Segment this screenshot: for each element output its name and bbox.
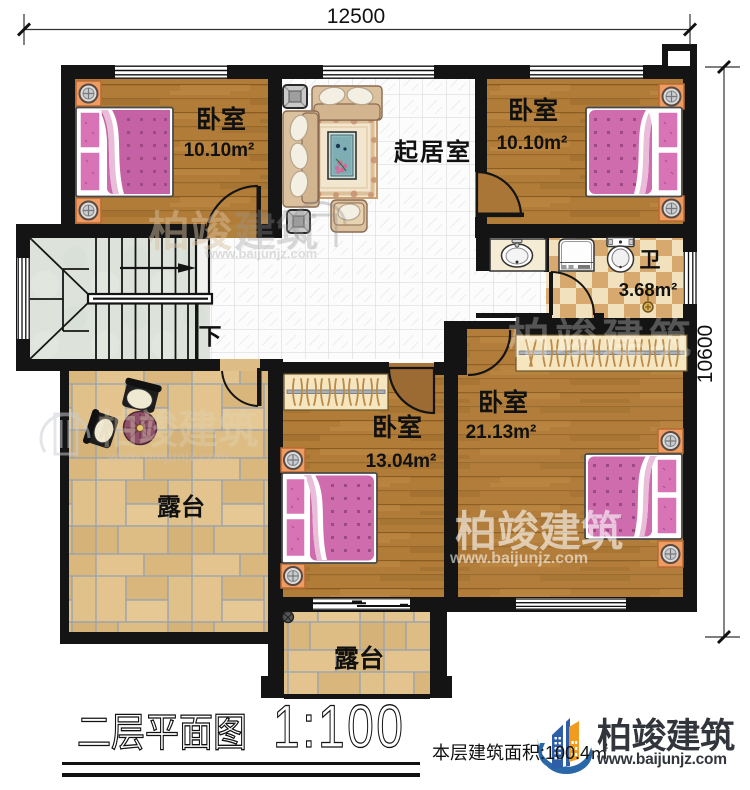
svg-text:卧室: 卧室 [196, 105, 246, 134]
svg-text:卧室: 卧室 [372, 413, 422, 442]
svg-text:下: 下 [199, 323, 222, 349]
svg-text:10600: 10600 [694, 325, 717, 383]
svg-text:10.10m²: 10.10m² [497, 133, 568, 154]
svg-text:www.baijunjz.com: www.baijunjz.com [204, 246, 317, 261]
svg-text:12500: 12500 [327, 5, 385, 28]
svg-text:柏竣建筑: 柏竣建筑 [455, 508, 623, 555]
svg-text:起居室: 起居室 [393, 138, 472, 166]
svg-text:13.04m²: 13.04m² [366, 451, 437, 472]
svg-text:柏竣建筑: 柏竣建筑 [98, 408, 258, 452]
svg-text:卫: 卫 [640, 249, 661, 272]
svg-text:www.baijunjz.com: www.baijunjz.com [596, 751, 727, 768]
svg-text:卧室: 卧室 [478, 388, 528, 417]
svg-text:10.10m²: 10.10m² [184, 140, 255, 161]
svg-text:www.baijunjz.com: www.baijunjz.com [107, 448, 229, 464]
svg-text:露台: 露台 [157, 493, 205, 521]
svg-text:3.68m²: 3.68m² [619, 279, 678, 300]
svg-text:21.13m²: 21.13m² [466, 422, 537, 443]
svg-text:柏竣建筑: 柏竣建筑 [508, 315, 696, 362]
svg-text:二层平面图: 二层平面图 [77, 709, 247, 754]
svg-text:1:100: 1:100 [273, 693, 403, 760]
svg-text:卧室: 卧室 [508, 96, 558, 125]
svg-text:www.baijunjz.com: www.baijunjz.com [449, 550, 588, 567]
svg-text:本层建筑面积:100.4㎡: 本层建筑面积:100.4㎡ [432, 742, 608, 763]
svg-text:露台: 露台 [334, 644, 384, 673]
svg-text:柏竣建筑: 柏竣建筑 [597, 716, 735, 756]
